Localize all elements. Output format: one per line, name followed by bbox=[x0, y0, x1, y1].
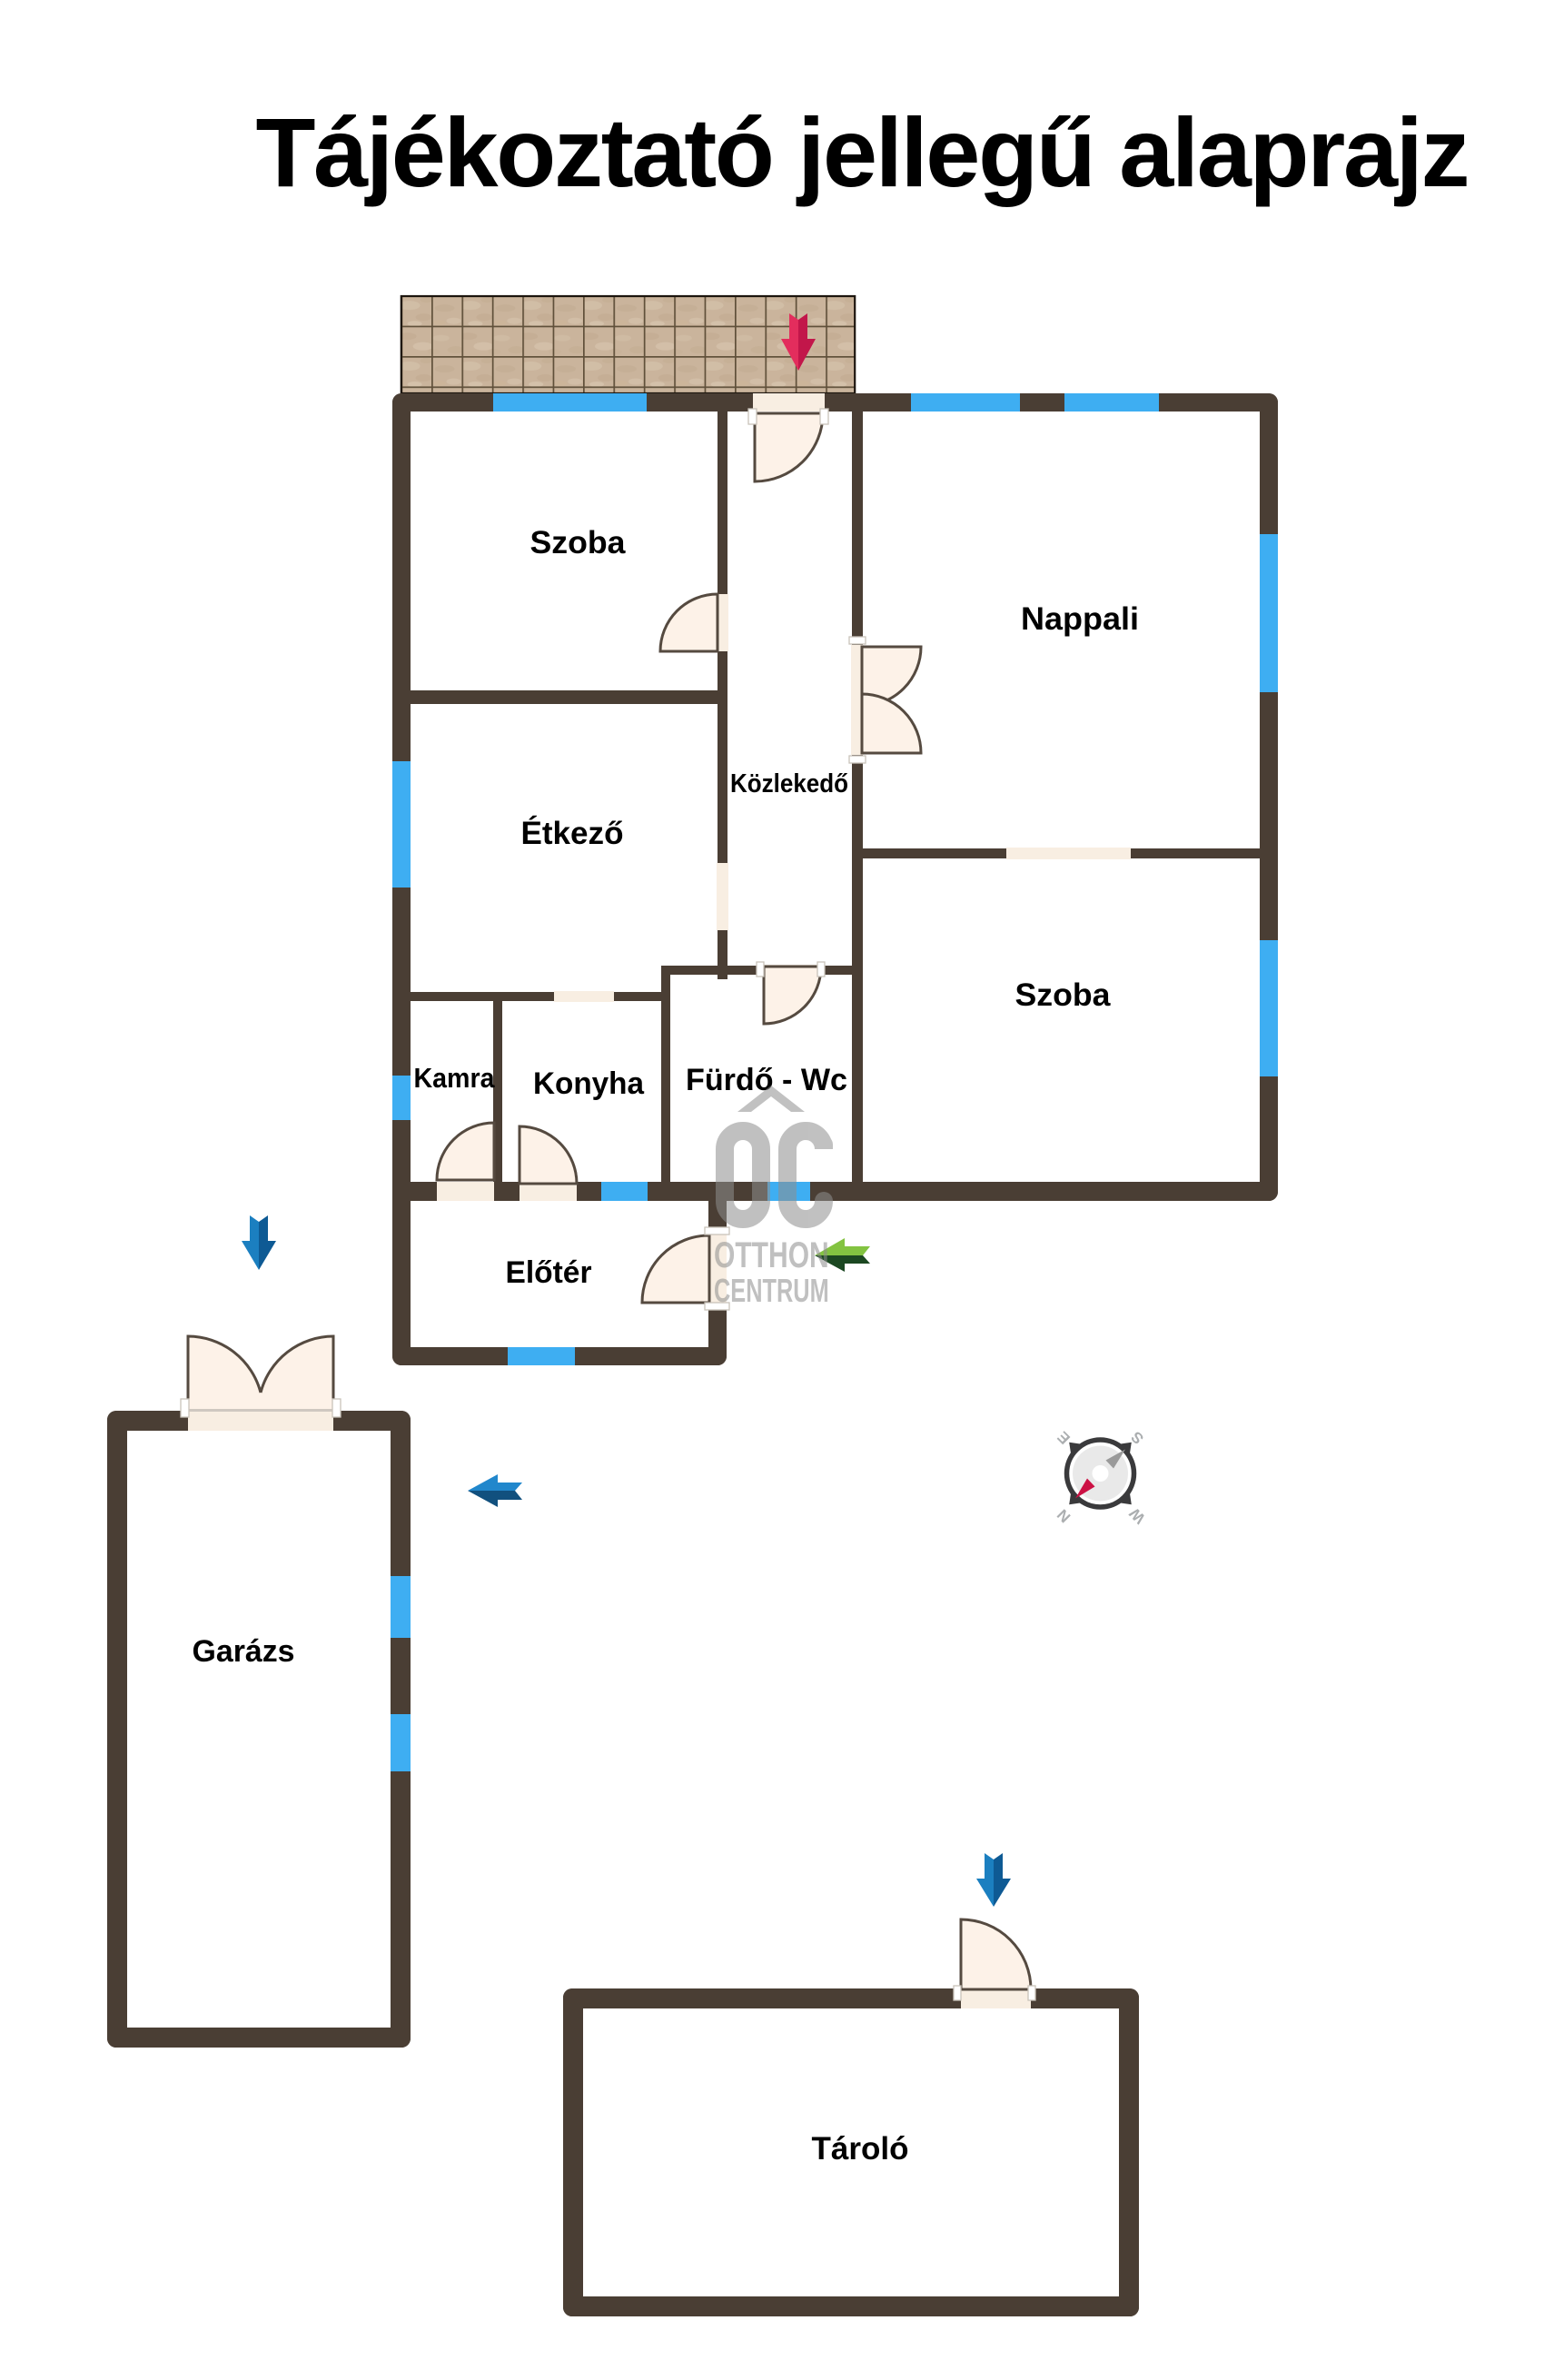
svg-text:Kamra: Kamra bbox=[414, 1062, 496, 1094]
svg-text:CENTRUM: CENTRUM bbox=[714, 1272, 829, 1309]
svg-text:Előtér: Előtér bbox=[506, 1255, 592, 1290]
svg-text:Garázs: Garázs bbox=[193, 1634, 295, 1669]
svg-text:Tároló: Tároló bbox=[812, 2131, 909, 2167]
svg-text:OTTHON: OTTHON bbox=[714, 1235, 829, 1275]
svg-text:Tájékoztató jellegű alaprajz: Tájékoztató jellegű alaprajz bbox=[256, 97, 1470, 207]
svg-text:Nappali: Nappali bbox=[1021, 601, 1139, 637]
svg-text:Szoba: Szoba bbox=[1015, 977, 1112, 1013]
svg-text:Szoba: Szoba bbox=[530, 525, 627, 560]
svg-text:Konyha: Konyha bbox=[533, 1066, 645, 1101]
svg-text:Közlekedő: Közlekedő bbox=[730, 769, 848, 798]
svg-text:Étkező: Étkező bbox=[521, 815, 624, 851]
